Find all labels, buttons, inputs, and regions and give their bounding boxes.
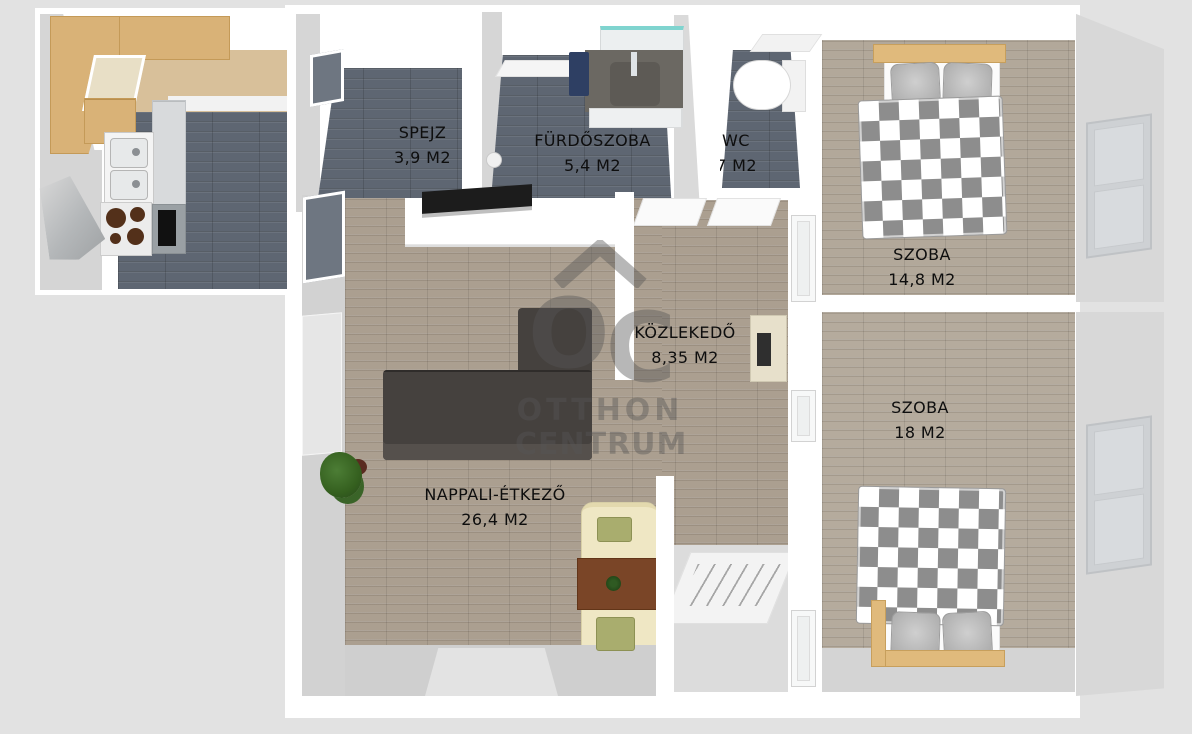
dining-cushion (597, 517, 632, 542)
stove-burner (130, 207, 145, 222)
spejz-left-wall-face (296, 14, 320, 212)
living-window (303, 191, 345, 284)
sofa-body (383, 370, 592, 460)
stove-burner (106, 208, 126, 228)
bath-towel (569, 52, 589, 96)
bath-vanity-drawers (589, 108, 683, 128)
corridor-side-door (791, 390, 816, 442)
bedroom2-door (791, 610, 816, 687)
bed1-headboard (873, 44, 1006, 63)
bedroom2-window (1086, 415, 1152, 574)
room-area: 5,4 M2 (515, 153, 670, 178)
plant (320, 452, 362, 498)
room-label-szoba-felso: SZOBA 14,8 M2 (862, 242, 982, 292)
bottom-wall-door (425, 648, 558, 696)
floor-plan: SPEJZ 3,9 M2 FÜRDŐSZOBA 5,4 M2 WC 1,7 M2… (0, 0, 1192, 734)
toilet-bowl (733, 60, 791, 110)
room-area: 14,8 M2 (862, 267, 982, 292)
room-area: 18 M2 (860, 420, 980, 445)
kitchen-cabinet-fronts (152, 100, 186, 207)
room-name: SZOBA (891, 398, 949, 417)
room-label-furdoszoba: FÜRDŐSZOBA 5,4 M2 (515, 128, 670, 178)
room-area: 3,9 M2 (365, 145, 480, 170)
sink-drain-icon (132, 180, 140, 188)
window-pane (1094, 122, 1144, 186)
oven-window (158, 210, 176, 246)
stove-burner (110, 233, 121, 244)
room-label-spejz: SPEJZ 3,9 M2 (365, 120, 480, 170)
room-name: NAPPALI-ÉTKEZŐ (424, 485, 565, 504)
bottom-outer-wall (288, 696, 1080, 718)
room-label-kozlekedo: KÖZLEKEDŐ 8,35 M2 (610, 320, 760, 370)
window-pane (1094, 424, 1144, 495)
living-terrace-door (302, 312, 342, 455)
wc-ceiling-light (750, 34, 823, 52)
bed2-footboard-side (871, 600, 886, 667)
sink-basin-top (110, 138, 148, 168)
table-plant-icon (606, 576, 621, 591)
room-label-nappali: NAPPALI-ÉTKEZŐ 26,4 M2 (405, 482, 585, 532)
corridor-door-leaf (633, 198, 707, 226)
sink-drain-icon (132, 148, 140, 156)
sink-basin-bottom (110, 170, 148, 200)
corridor-door-leaf (707, 198, 781, 226)
bedroom1-window (1086, 113, 1152, 258)
room-area: 8,35 M2 (610, 345, 760, 370)
window-pane (1094, 493, 1144, 565)
bath-faucet-icon (631, 52, 637, 76)
stove-burner (127, 228, 144, 245)
window-pane (1094, 184, 1144, 249)
room-label-szoba-also: SZOBA 18 M2 (860, 395, 980, 445)
room-name: SZOBA (893, 245, 951, 264)
room-name: KÖZLEKEDŐ (634, 323, 735, 342)
bed2-footboard (876, 650, 1005, 667)
wc-left-wall (700, 5, 720, 197)
spejz-window (310, 49, 344, 107)
room-area: 26,4 M2 (405, 507, 585, 532)
living-corridor-wall-lower (656, 476, 674, 698)
bedroom1-door (791, 215, 816, 302)
bath-floor-drain-icon (486, 152, 502, 168)
room-name: FÜRDŐSZOBA (534, 131, 651, 150)
bed1-duvet (858, 96, 1008, 240)
dining-cushion (596, 617, 635, 651)
room-name: SPEJZ (399, 123, 447, 142)
